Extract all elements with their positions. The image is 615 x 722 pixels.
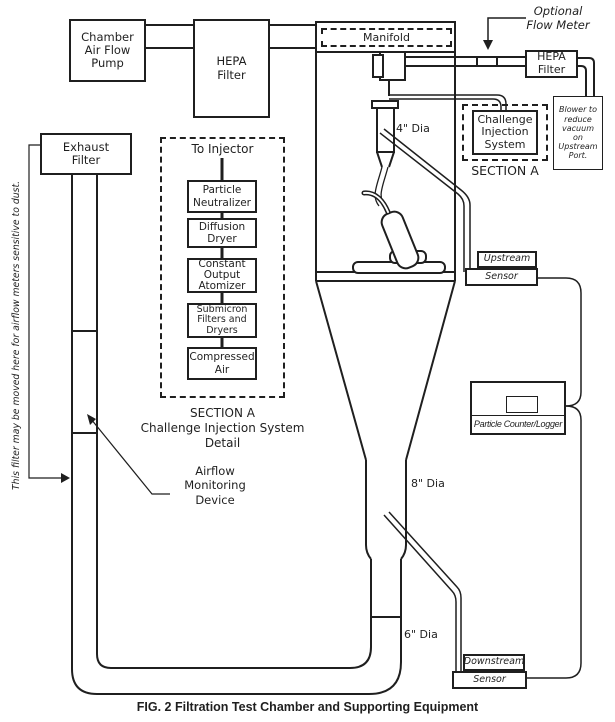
right-arrow [29,145,70,483]
diffusion-dryer-box: Diffusion Dryer [187,218,257,248]
upstream-sensor-top-box: Upstream [477,251,537,268]
particle-neutralizer-box: Particle Neutralizer [187,180,257,213]
particle-counter-logger-box: Particle Counter/Logger [470,381,566,435]
test-filter-device-illustration [353,193,445,273]
constant-output-atomizer-box: Constant Output Atomizer [187,258,257,293]
filter-relocation-note: This filter may be moved here for airflo… [11,145,25,490]
figure-2-diagram: Chamber Air Flow Pump HEPA Filter Manifo… [0,0,615,722]
dia-6-label: 6" Dia [404,628,449,642]
hepa-filter-right-box: HEPA Filter [525,50,578,78]
upstream-sensor-bottom-box: Sensor [465,268,538,286]
counter-display-screen [506,396,538,413]
dia-8-label: 8" Dia [411,477,456,491]
to-injector-label: To Injector [170,142,275,157]
challenge-injection-system-box: Challenge Injection System [472,110,538,155]
airflow-monitoring-device-label: Airflow Monitoring Device [175,464,255,507]
chamber-air-flow-pump-box: Chamber Air Flow Pump [69,19,146,82]
sensor-tubing [527,278,581,678]
section-a-detail-caption: SECTION A Challenge Injection System Det… [120,406,325,451]
exhaust-filter-box: Exhaust Filter [40,133,132,175]
submicron-filters-box: Submicron Filters and Dryers [187,303,257,338]
downstream-probe-tube [384,512,461,674]
optional-flow-meter-label: Optional Flow Meter [512,4,604,33]
blower-note-box: Blower to reduce vacuum on Upstream Port… [553,96,603,170]
compressed-air-box: Compressed Air [187,347,257,380]
downstream-sensor-top-box: Downstream [463,654,525,671]
manifold-box: Manifold [321,28,452,47]
hepa-filter-left-box: HEPA Filter [193,19,270,118]
particle-counter-label: Particle Counter/Logger [472,415,564,433]
dia-4-label: 4" Dia [396,122,441,136]
section-a-label: SECTION A [455,163,555,179]
downstream-sensor-bottom-box: Sensor [452,671,527,689]
figure-caption: FIG. 2 Filtration Test Chamber and Suppo… [0,700,615,714]
